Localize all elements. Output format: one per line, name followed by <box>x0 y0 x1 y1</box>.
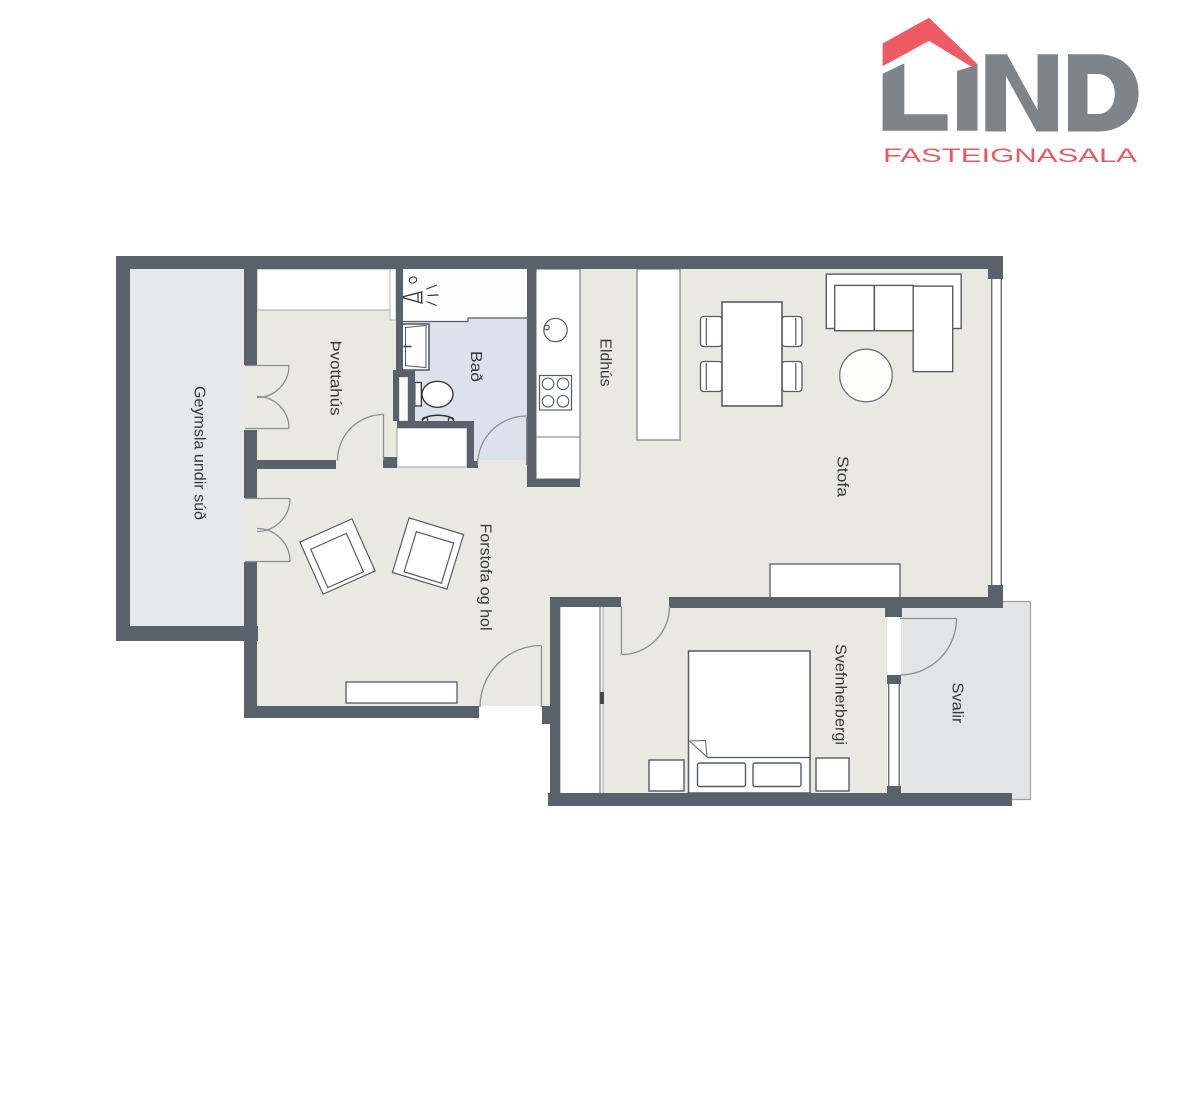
svg-text:Eldhús: Eldhús <box>596 339 613 387</box>
svg-text:Forstofa og hol: Forstofa og hol <box>476 524 493 631</box>
svg-text:FASTEIGNASALA: FASTEIGNASALA <box>883 145 1137 167</box>
svg-text:Geymsla undir súð: Geymsla undir súð <box>190 386 207 520</box>
svg-text:Svalir: Svalir <box>948 683 965 725</box>
svg-text:Svefnherbergi: Svefnherbergi <box>831 644 848 745</box>
svg-text:Þvottahús: Þvottahús <box>326 341 343 416</box>
svg-text:Bað: Bað <box>467 351 484 382</box>
svg-text:Stofa: Stofa <box>833 456 850 497</box>
